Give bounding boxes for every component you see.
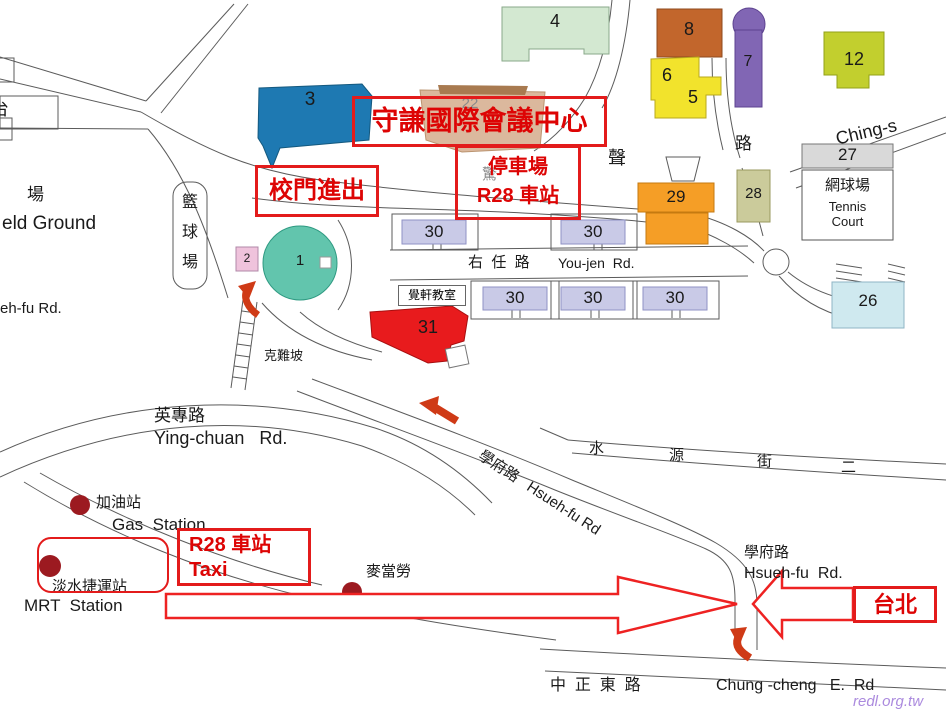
basketball-court-char2: 球 <box>182 224 198 242</box>
building-3-label: 3 <box>270 90 350 111</box>
building-1-label: 1 <box>282 253 318 270</box>
ke-nan-slope-label: 克難坡 <box>264 349 303 363</box>
building-6-label: 6 <box>652 66 682 86</box>
road-lu-char: 路 <box>735 135 752 154</box>
gas-station-dot <box>70 495 90 515</box>
shuiyuan-char1: 水 <box>589 441 604 458</box>
building-1-notch <box>320 257 331 268</box>
shuiyuan-char3: 街 <box>757 454 772 471</box>
conference-center-box: 守謙國際會議中心 <box>352 96 607 147</box>
mrt-station-en: MRT Station <box>24 597 123 616</box>
basketball-court-char1: 籃 <box>182 194 198 212</box>
building-22-roof <box>438 85 528 95</box>
youjen-road-en: You-jen Rd. <box>558 256 635 271</box>
basketball-court-char3: 場 <box>182 254 198 272</box>
building-30-label: 30 <box>561 289 625 308</box>
building-27-label: 27 <box>802 146 893 165</box>
partial-building-label: 台 <box>0 100 9 120</box>
building-29-lower-shape <box>646 213 708 244</box>
r28-taxi-line2: Taxi <box>189 558 308 583</box>
curved-arrow-yingchuan <box>419 396 457 421</box>
curved-arrow-junction <box>730 627 750 658</box>
shuiyuan-char2: 源 <box>669 448 684 465</box>
conference-center-label: 守謙國際會議中心 <box>372 106 588 136</box>
zhongzheng-road-zh: 中 正 東 路 <box>550 677 641 695</box>
ching-sheng-char: 聲 <box>608 149 626 169</box>
building-12-label: 12 <box>824 50 884 70</box>
gate-access-label: 校門進出 <box>269 177 365 204</box>
yingchuan-road-en: Ying-chuan Rd. <box>154 429 287 449</box>
building-8-label: 8 <box>672 20 706 40</box>
tennis-court-en1: Tennis <box>802 200 893 214</box>
hsuehfu-road-right-en: Hsueh-fu Rd. <box>744 565 843 583</box>
shuiyuan-char4: 二 <box>841 460 856 477</box>
building-30-label: 30 <box>483 289 547 308</box>
building-30-label: 30 <box>643 289 707 308</box>
gas-station-zh: 加油站 <box>96 495 141 512</box>
building-2-label: 2 <box>237 252 257 265</box>
building-29-label: 29 <box>638 188 714 207</box>
taipei-box: 台北 <box>853 586 937 623</box>
building-28-label: 28 <box>737 186 770 203</box>
small-building-outline <box>445 345 469 368</box>
building-5-label: 5 <box>678 88 708 108</box>
yingchuan-road-zh: 英專路 <box>154 407 205 426</box>
building-31-label: 31 <box>398 318 458 338</box>
building-30-label: 30 <box>402 223 466 242</box>
parking-line1: 停車場 <box>458 153 578 182</box>
mrt-highlight-outline <box>37 537 169 593</box>
hsuehfu-road-right-zh: 學府路 <box>744 545 789 562</box>
field-ground-en: eld Ground <box>2 214 96 235</box>
building-7-label: 7 <box>734 53 762 71</box>
building-4-label: 4 <box>520 12 590 32</box>
zhongzheng-road-en: Chung -cheng E. Rd <box>716 677 874 695</box>
hsuehfu-road-left-partial: eh-fu Rd. <box>0 301 62 318</box>
campus-map: 台 場 eld Ground 籃 球 場 3 4 8 6 5 7 12 22 2… <box>0 0 946 717</box>
building-26-label: 26 <box>832 292 904 311</box>
curved-arrow-gate <box>238 281 258 315</box>
building-30-label: 30 <box>561 223 625 242</box>
youjen-road-zh: 右 任 路 <box>468 255 530 272</box>
r28-taxi-box: R28 車站 Taxi <box>177 528 311 586</box>
parking-r28-box: 停車場 R28 車站 <box>455 145 581 220</box>
gate-access-box: 校門進出 <box>255 165 379 217</box>
parking-line2: R28 車站 <box>458 182 578 211</box>
mcdonalds-label: 麥當勞 <box>366 564 411 581</box>
tennis-court-en2: Court <box>802 215 893 229</box>
tennis-court-zh: 網球場 <box>802 178 893 195</box>
chueh-hsuan-classroom-box: 覺軒教室 <box>398 285 466 306</box>
taipei-label: 台北 <box>873 592 917 617</box>
r28-taxi-line1: R28 車站 <box>189 533 308 558</box>
watermark: redl.org.tw <box>853 693 923 710</box>
chueh-hsuan-classroom-label: 覺軒教室 <box>408 288 456 302</box>
field-ground-zh: 場 <box>27 186 44 205</box>
